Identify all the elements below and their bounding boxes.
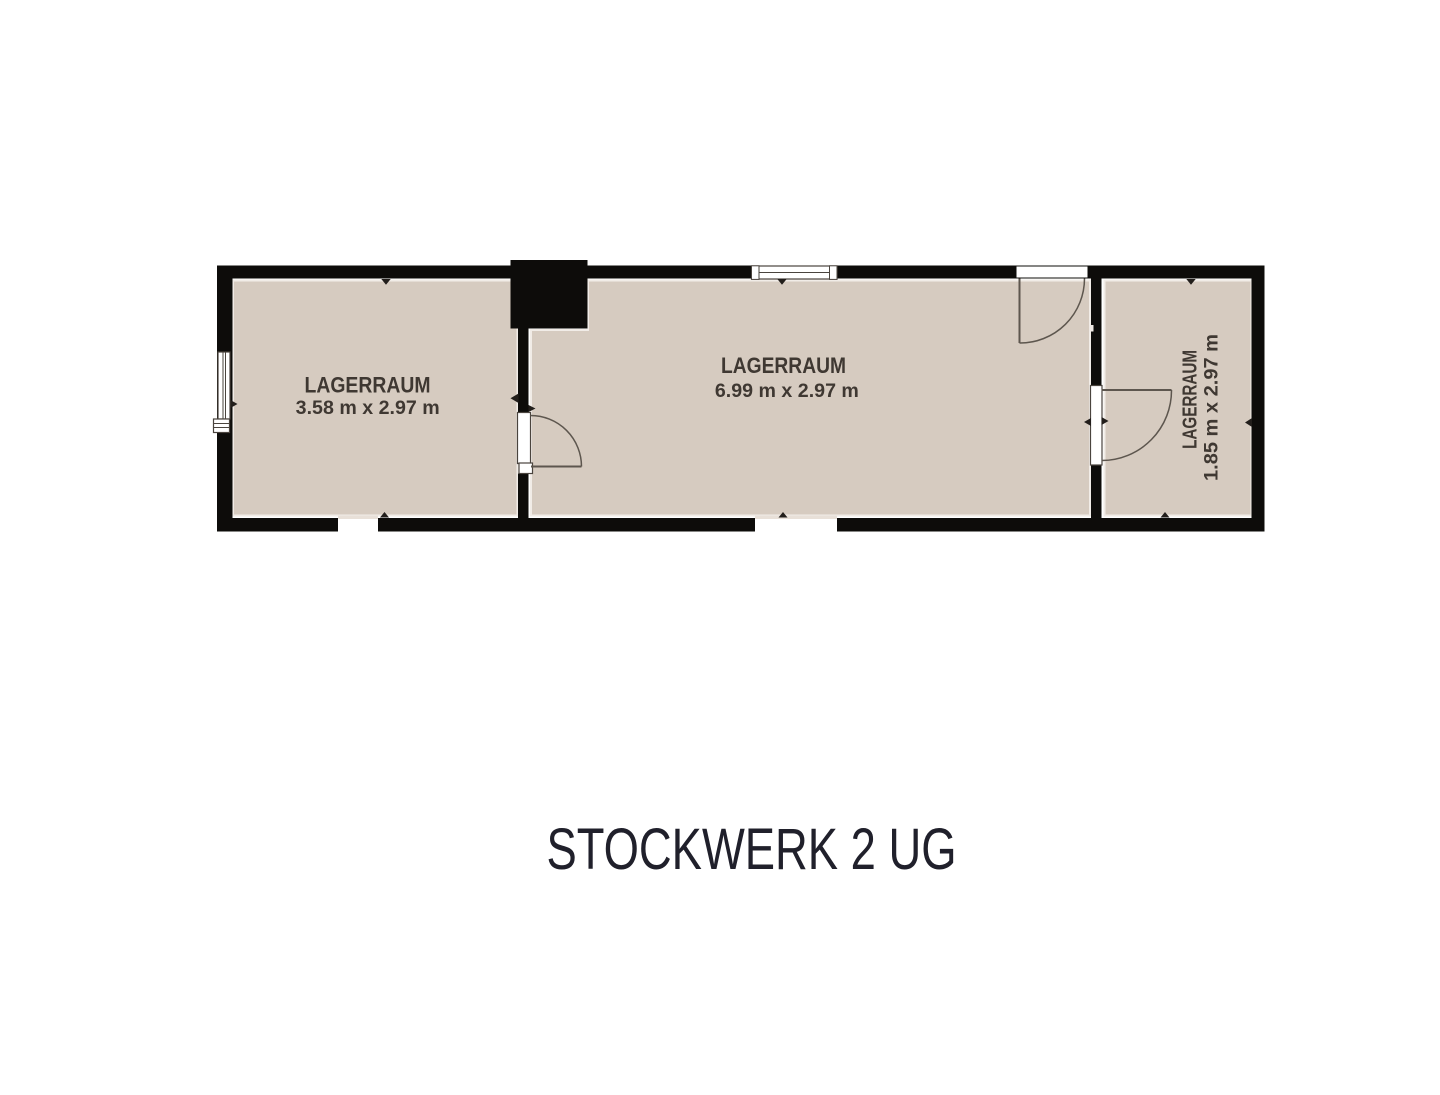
svg-text:1.85 m x 2.97 m: 1.85 m x 2.97 m	[1201, 334, 1222, 481]
svg-text:LAGERRAUM: LAGERRAUM	[1180, 350, 1202, 449]
svg-text:LAGERRAUM: LAGERRAUM	[305, 373, 431, 398]
svg-text:6.99 m x 2.97 m: 6.99 m x 2.97 m	[715, 381, 859, 402]
svg-text:LAGERRAUM: LAGERRAUM	[721, 353, 846, 378]
svg-text:STOCKWERK 2 UG: STOCKWERK 2 UG	[547, 817, 957, 882]
svg-text:3.58 m x 2.97 m: 3.58 m x 2.97 m	[296, 398, 440, 419]
